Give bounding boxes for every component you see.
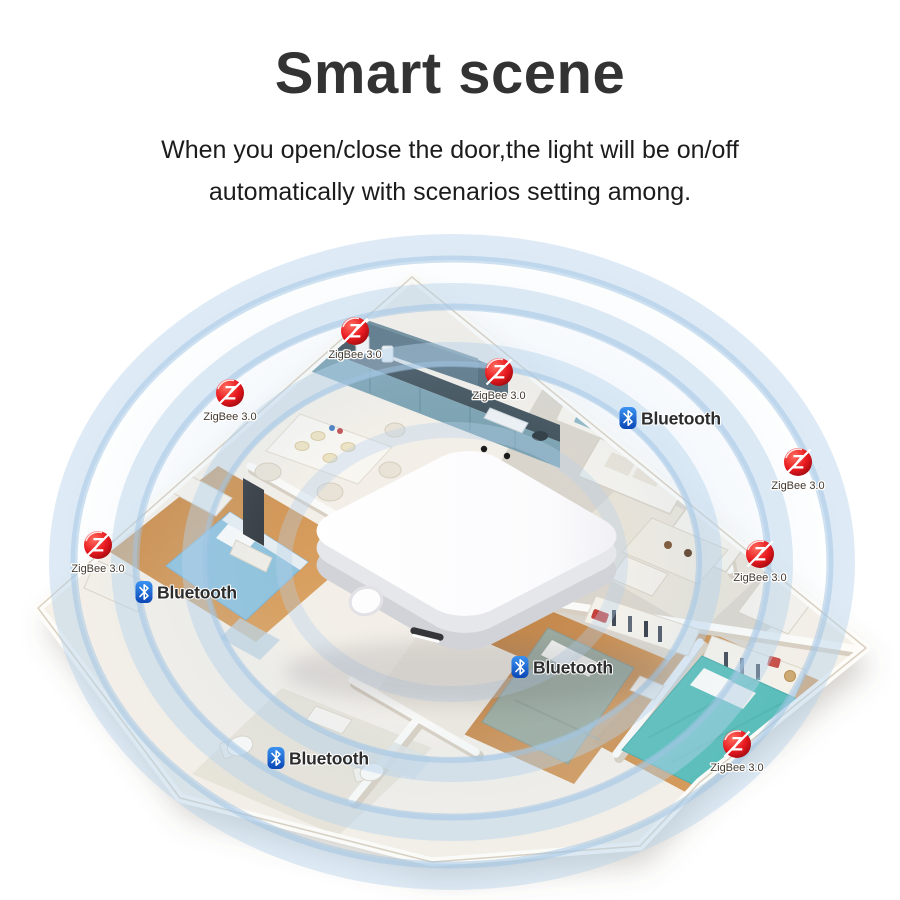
subtitle-line-2: automatically with scenarios setting amo… bbox=[0, 171, 900, 213]
zigbee-label: ZigBee 3.0 bbox=[71, 563, 124, 575]
bluetooth-label: Bluetooth bbox=[157, 583, 237, 603]
hub-led-indicator bbox=[504, 453, 510, 459]
svg-text:Z: Z bbox=[92, 536, 104, 557]
zigbee-label: ZigBee 3.0 bbox=[733, 572, 786, 584]
svg-text:Z: Z bbox=[224, 384, 236, 405]
page-title: Smart scene bbox=[0, 0, 900, 107]
svg-text:Z: Z bbox=[792, 453, 804, 474]
hub-led-indicator bbox=[481, 446, 487, 452]
bluetooth-badge: Bluetooth bbox=[512, 656, 613, 678]
zigbee-label: ZigBee 3.0 bbox=[203, 411, 256, 423]
bluetooth-label: Bluetooth bbox=[641, 409, 721, 429]
svg-text:Z: Z bbox=[731, 735, 743, 756]
header: Smart scene When you open/close the door… bbox=[0, 0, 900, 213]
floorplan-svg: Z ZigBee 3.0 Z ZigBee 3.0 Z ZigBee 3.0 bbox=[0, 215, 900, 900]
bluetooth-badge: Bluetooth bbox=[136, 581, 237, 603]
svg-text:Z: Z bbox=[349, 322, 361, 343]
zigbee-label: ZigBee 3.0 bbox=[328, 349, 381, 361]
subtitle-line-1: When you open/close the door,the light w… bbox=[0, 129, 900, 171]
zigbee-label: ZigBee 3.0 bbox=[472, 390, 525, 402]
bluetooth-badge: Bluetooth bbox=[620, 407, 721, 429]
bluetooth-label: Bluetooth bbox=[533, 658, 613, 678]
svg-text:Z: Z bbox=[493, 363, 505, 384]
floorplan-scene: Z ZigBee 3.0 Z ZigBee 3.0 Z ZigBee 3.0 bbox=[0, 215, 900, 900]
bluetooth-badge: Bluetooth bbox=[268, 747, 369, 769]
bluetooth-label: Bluetooth bbox=[289, 749, 369, 769]
zigbee-label: ZigBee 3.0 bbox=[710, 762, 763, 774]
smart-scene-infographic: Smart scene When you open/close the door… bbox=[0, 0, 900, 900]
svg-text:Z: Z bbox=[754, 545, 766, 566]
zigbee-label: ZigBee 3.0 bbox=[771, 480, 824, 492]
